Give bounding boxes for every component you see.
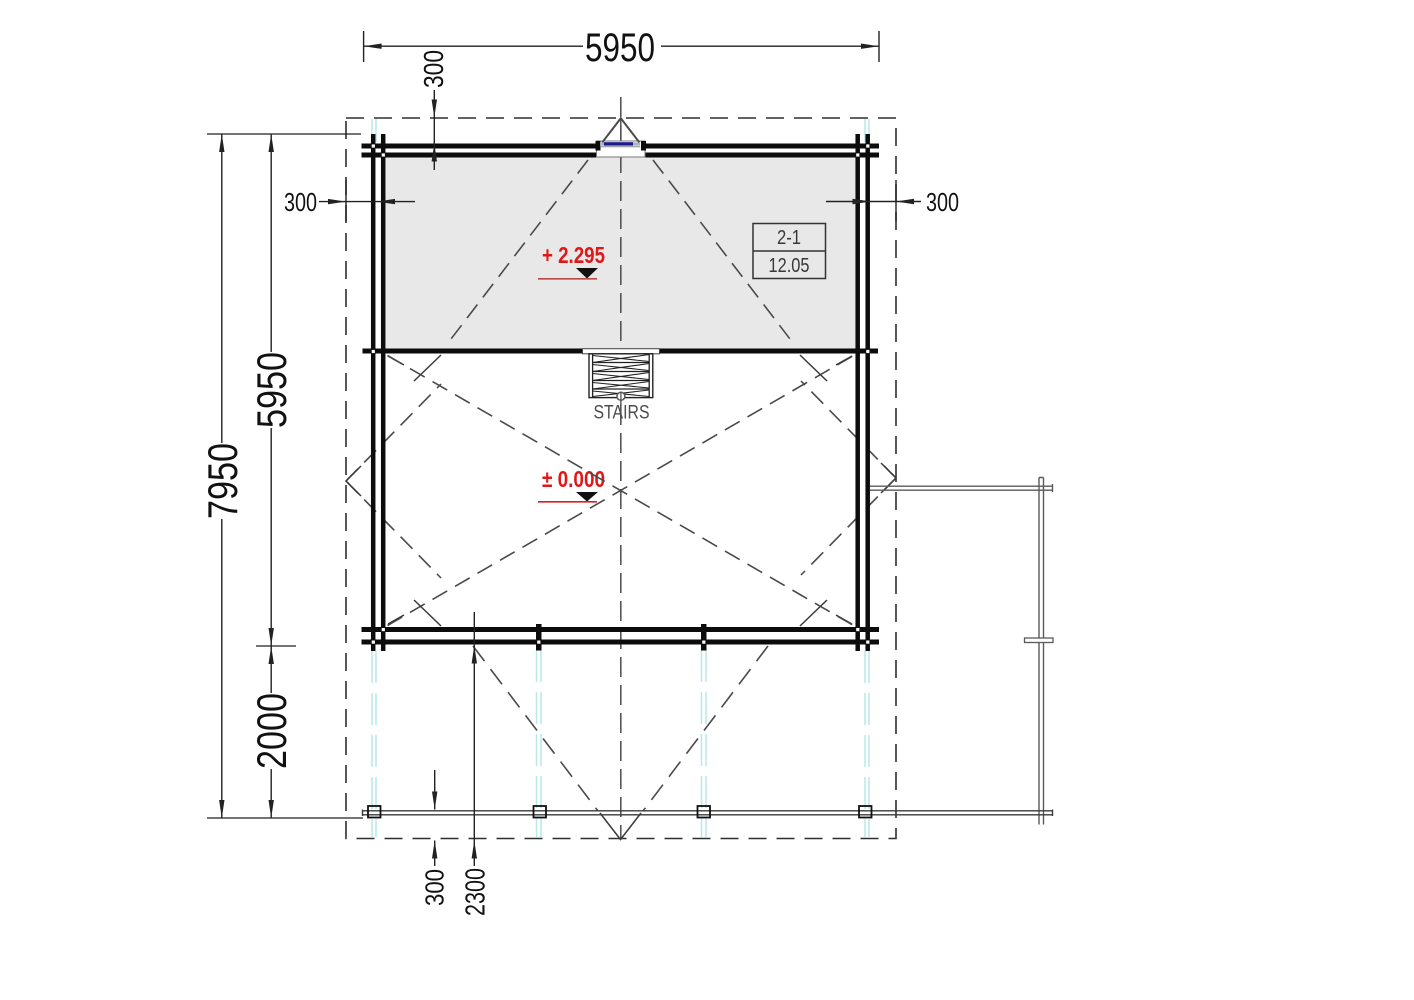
svg-text:300: 300 [420, 869, 450, 906]
svg-text:300: 300 [926, 187, 959, 217]
svg-text:STAIRS: STAIRS [594, 403, 650, 424]
svg-text:2000: 2000 [248, 693, 295, 769]
svg-text:2300: 2300 [460, 868, 491, 916]
svg-text:± 0.000: ± 0.000 [542, 466, 605, 492]
svg-text:+ 2.295: + 2.295 [542, 242, 605, 268]
svg-text:5950: 5950 [248, 352, 295, 428]
svg-text:5950: 5950 [585, 26, 655, 70]
svg-text:12.05: 12.05 [769, 255, 810, 277]
svg-text:2-1: 2-1 [777, 227, 801, 249]
svg-text:7950: 7950 [199, 443, 246, 519]
svg-text:300: 300 [418, 50, 449, 88]
svg-text:300: 300 [284, 187, 317, 217]
